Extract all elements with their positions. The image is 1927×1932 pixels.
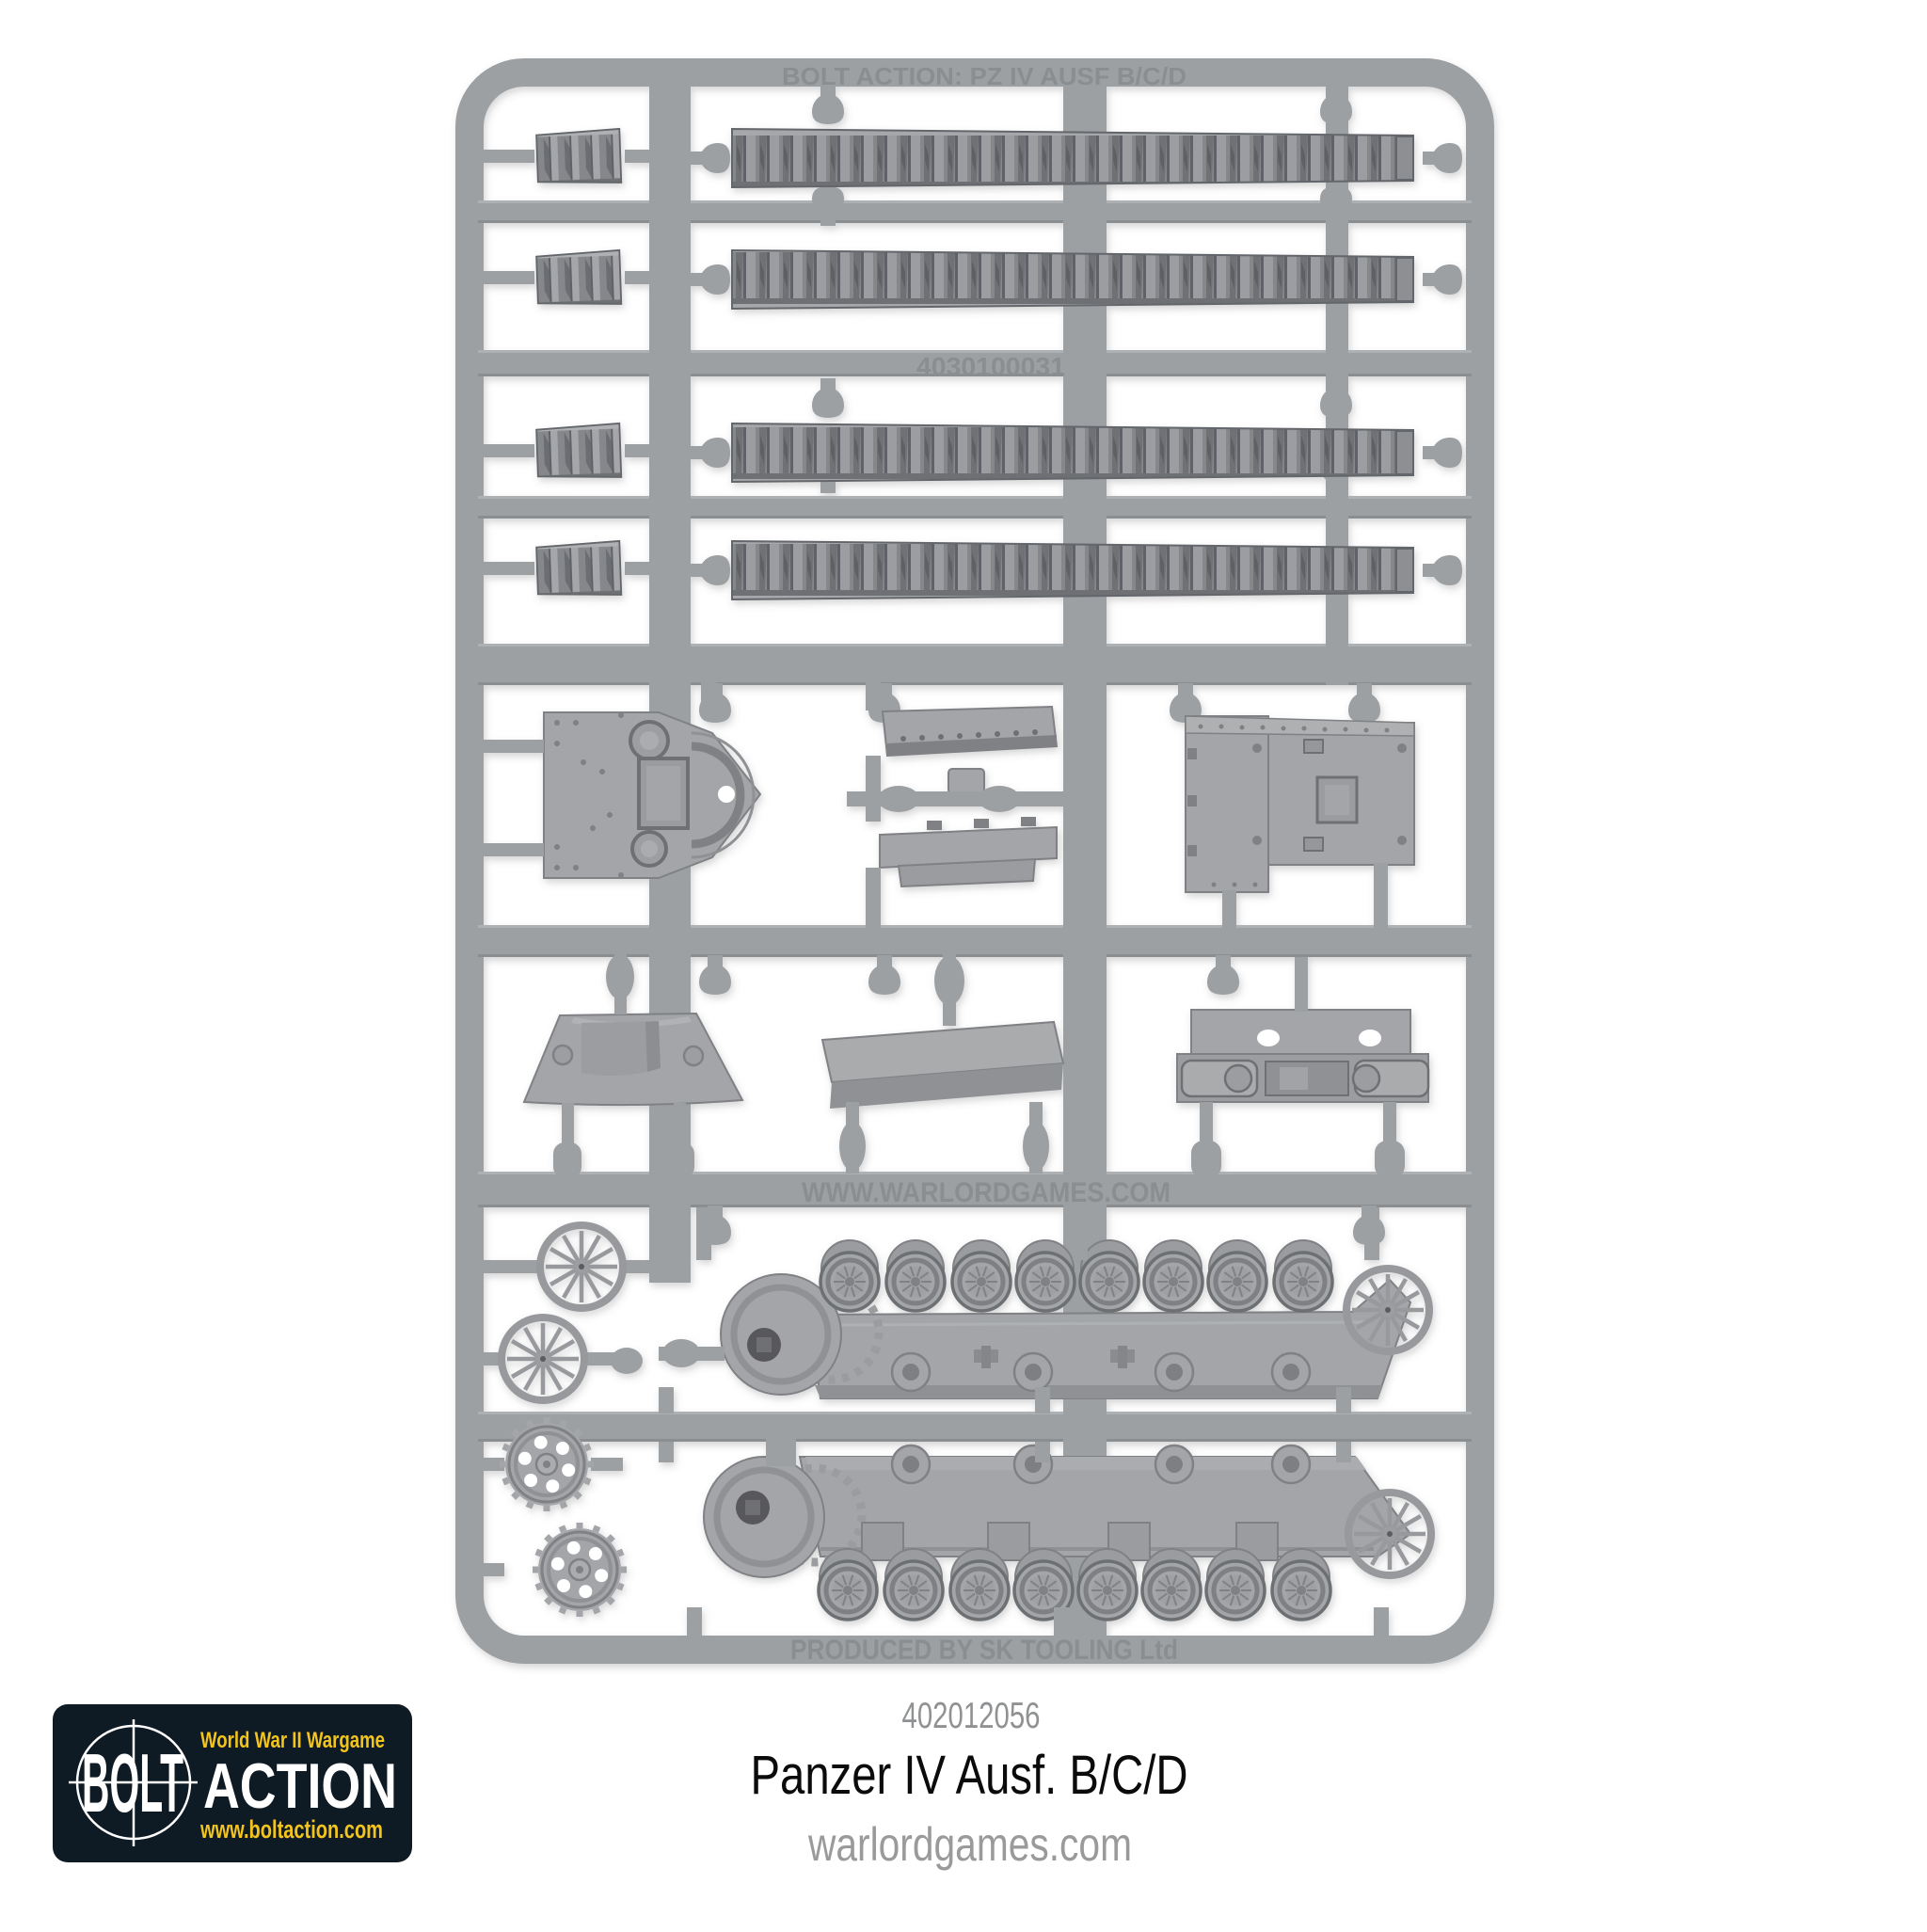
svg-text:Panzer IV Ausf. B/C/D: Panzer IV Ausf. B/C/D [751, 1745, 1188, 1806]
svg-text:World War II Wargame: World War II Wargame [200, 1728, 385, 1753]
svg-text:WWW.WARLORDGAMES.COM: WWW.WARLORDGAMES.COM [802, 1177, 1171, 1208]
svg-text:BOLT: BOLT [82, 1736, 183, 1829]
svg-text:BOLT ACTION: PZ IV AUSF B/C/D: BOLT ACTION: PZ IV AUSF B/C/D [782, 62, 1186, 90]
svg-text:warlordgames.com: warlordgames.com [807, 1818, 1132, 1871]
svg-text:4030100031: 4030100031 [916, 352, 1065, 381]
svg-text:www.boltaction.com: www.boltaction.com [199, 1815, 383, 1844]
svg-text:PRODUCED BY SK TOOLING Ltd: PRODUCED BY SK TOOLING Ltd [790, 1635, 1178, 1666]
svg-text:402012056: 402012056 [902, 1696, 1041, 1736]
svg-text:ACTION: ACTION [203, 1750, 397, 1822]
